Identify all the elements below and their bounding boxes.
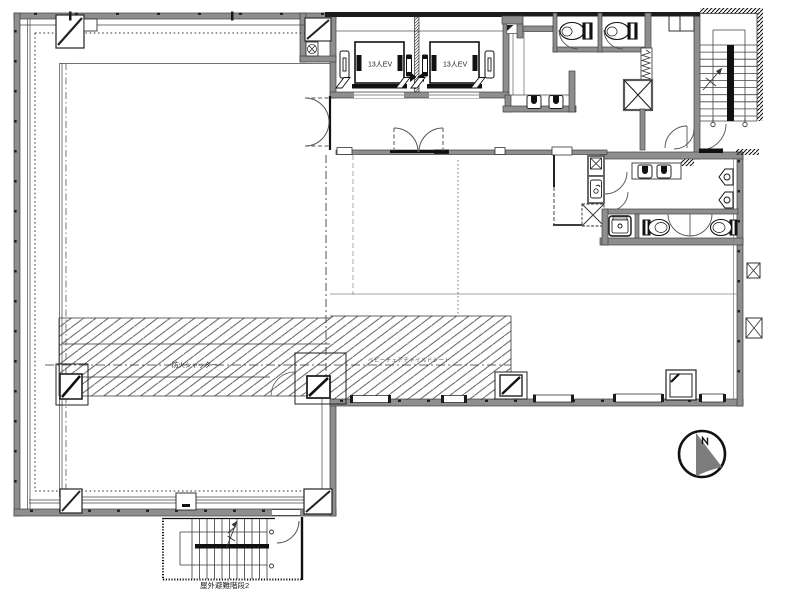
- svg-text:屋外避難階段2: 屋外避難階段2: [200, 580, 249, 590]
- svg-text:13人EV: 13人EV: [443, 61, 467, 69]
- svg-text:ベビーチェアチャイルドシート: ベビーチェアチャイルドシート: [368, 356, 450, 364]
- svg-text:防火シャッター: 防火シャッター: [172, 360, 218, 369]
- svg-text:13人EV: 13人EV: [368, 61, 392, 69]
